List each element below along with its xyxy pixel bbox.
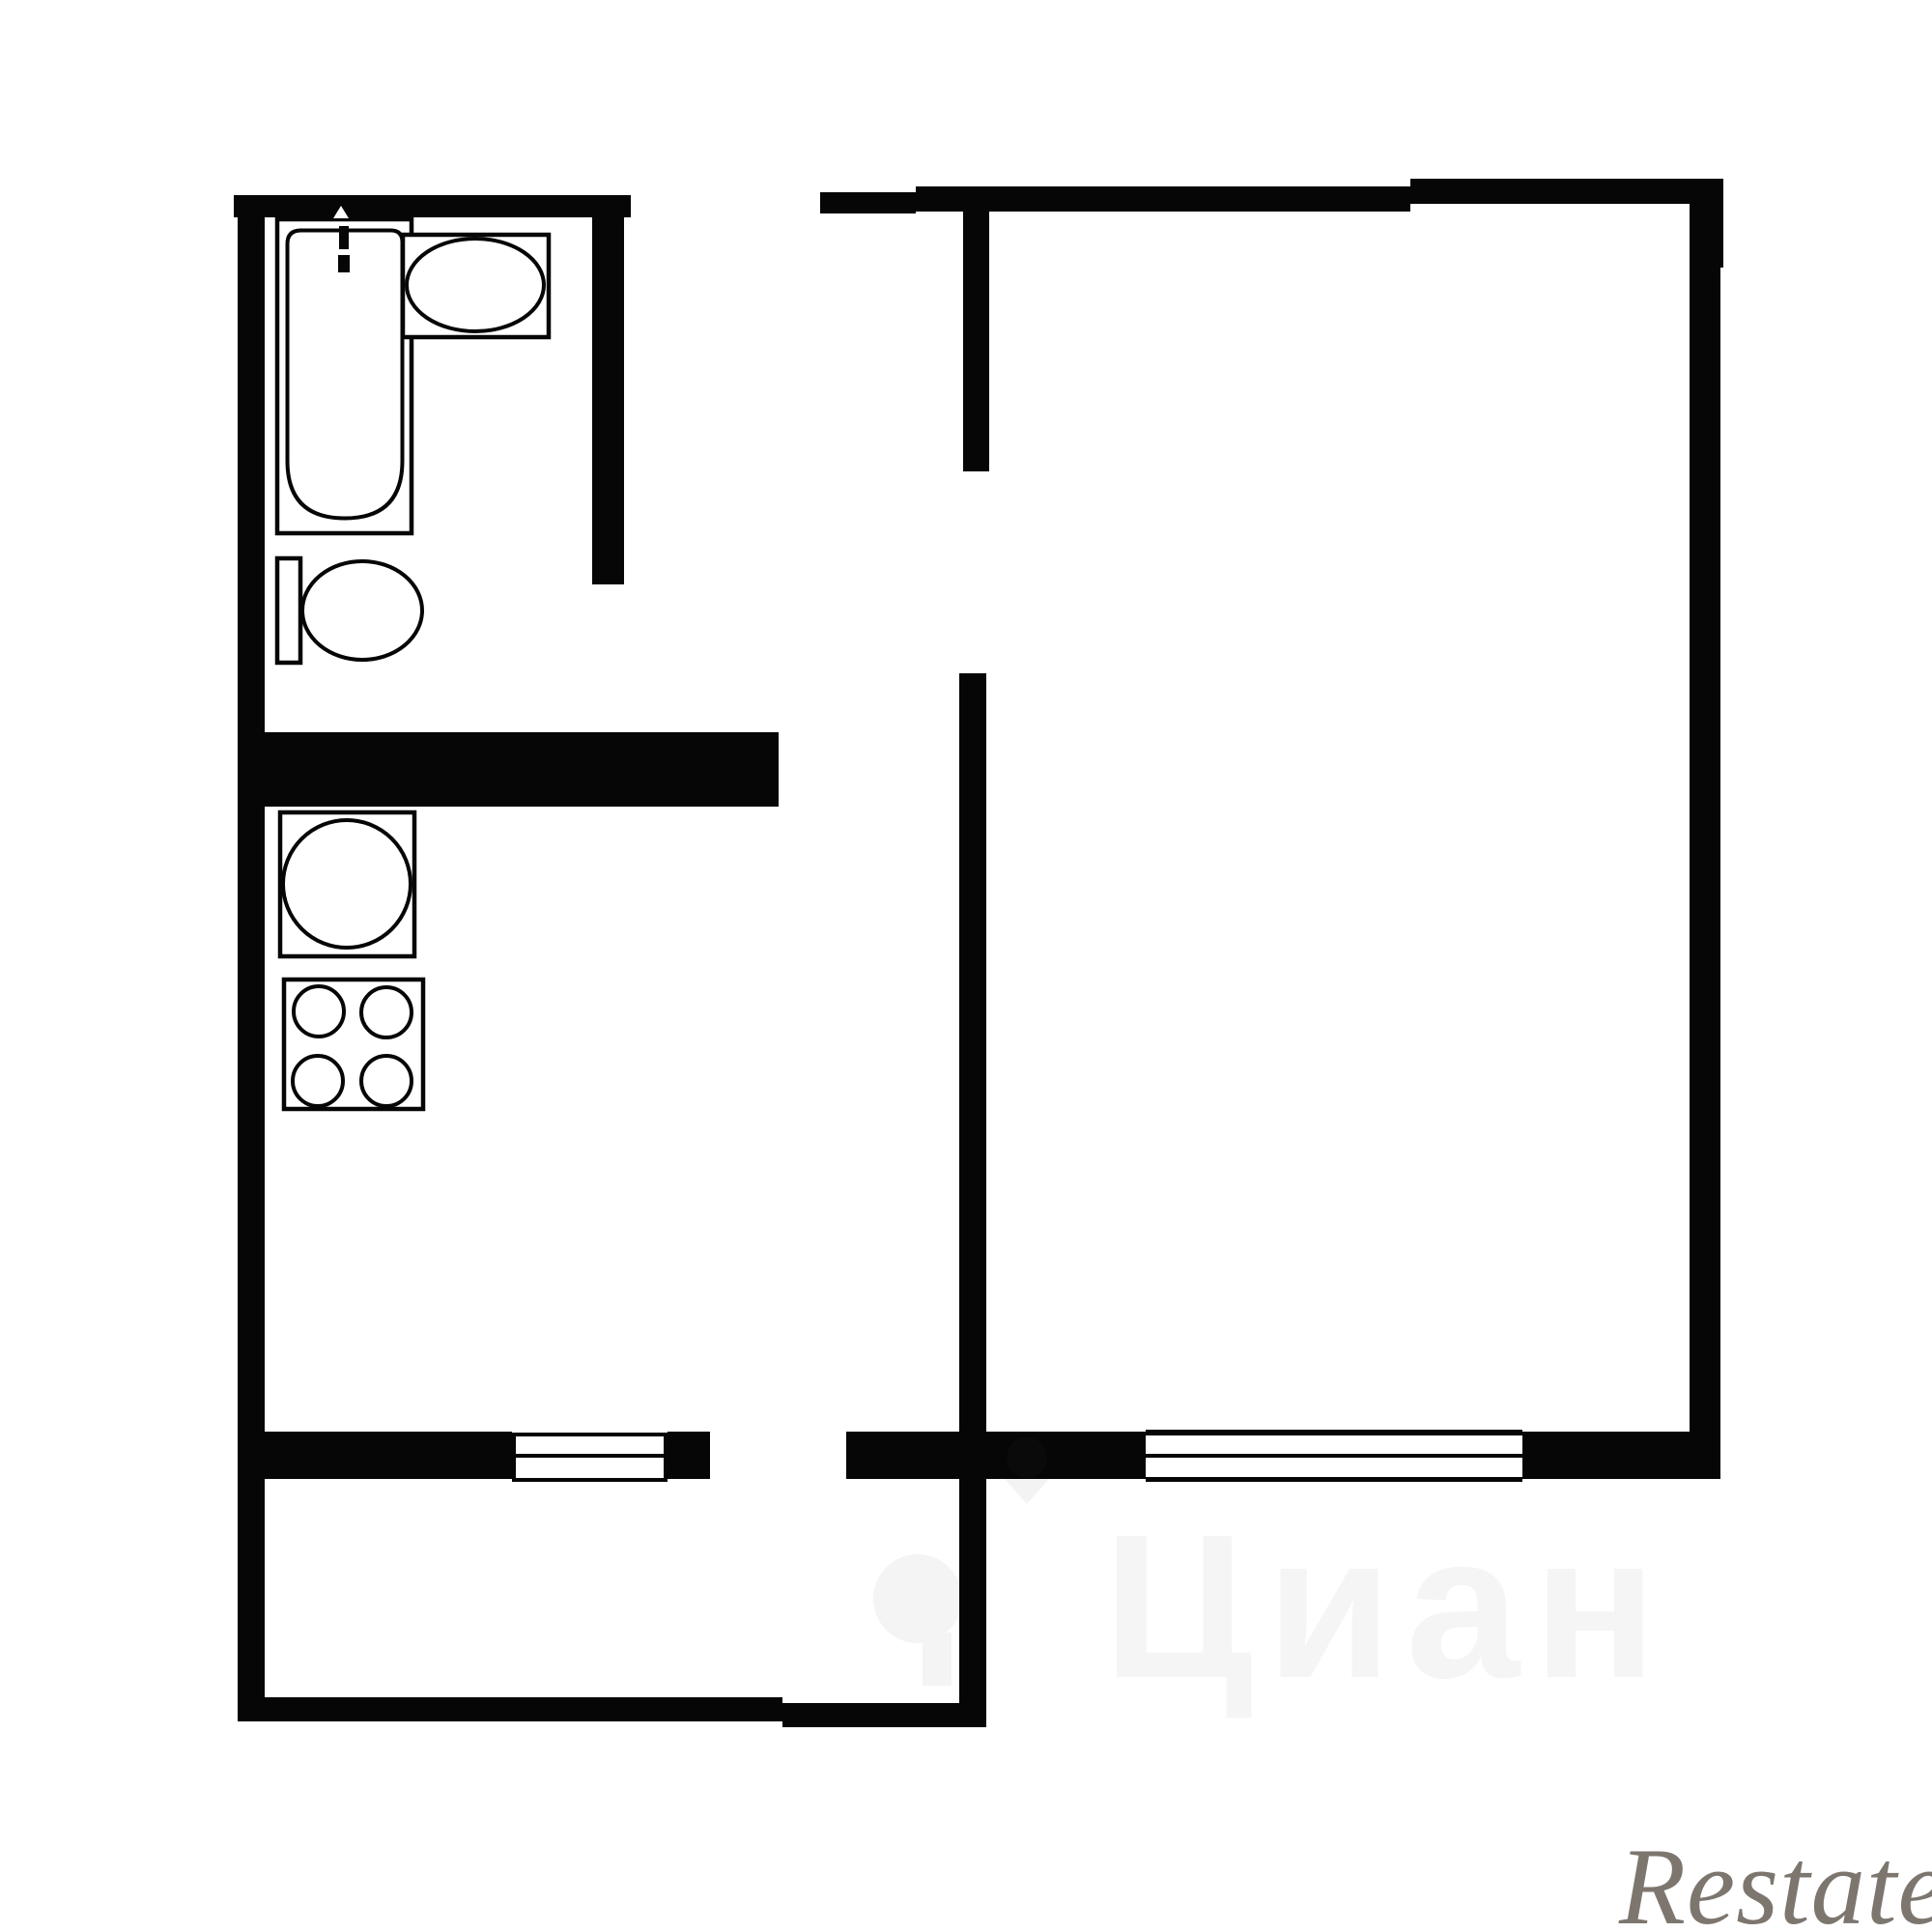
svg-text:Restate: Restate bbox=[1618, 1827, 1932, 1932]
svg-text:Циан: Циан bbox=[1103, 1492, 1670, 1720]
